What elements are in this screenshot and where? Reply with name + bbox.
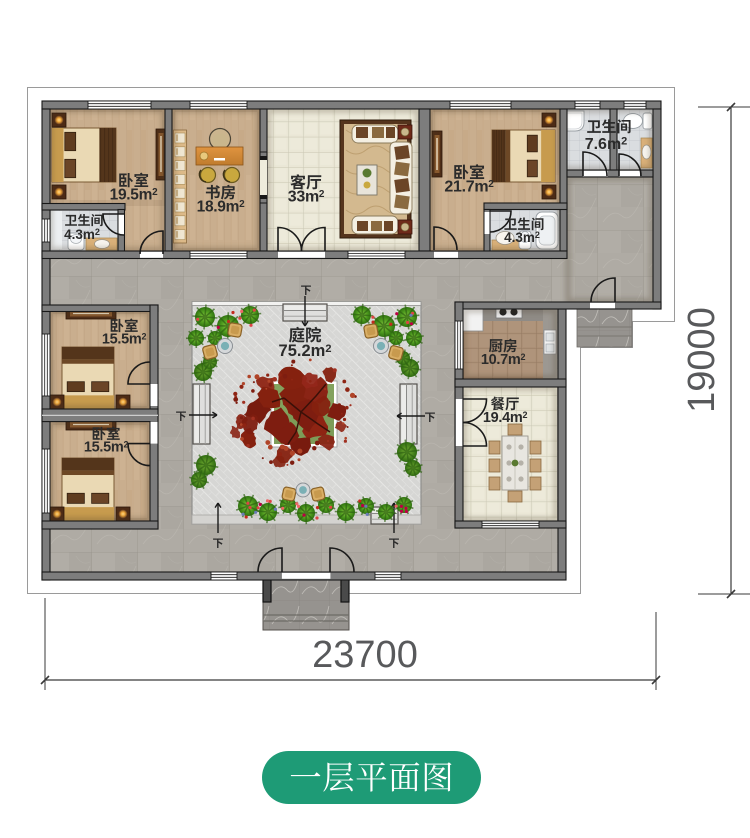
- svg-text:10.7m2: 10.7m2: [481, 352, 526, 368]
- svg-text:15.5m2: 15.5m2: [84, 439, 129, 455]
- svg-text:4.3m2: 4.3m2: [64, 227, 100, 242]
- svg-text:19000: 19000: [681, 307, 723, 413]
- svg-text:19.4m2: 19.4m2: [483, 410, 528, 426]
- svg-text:21.7m2: 21.7m2: [444, 179, 494, 196]
- svg-text:15.5m2: 15.5m2: [102, 331, 147, 347]
- svg-text:23700: 23700: [312, 634, 418, 676]
- svg-text:7.6m2: 7.6m2: [585, 136, 628, 154]
- svg-text:75.2m2: 75.2m2: [279, 342, 332, 360]
- svg-text:4.3m2: 4.3m2: [504, 230, 540, 245]
- svg-text:18.9m2: 18.9m2: [197, 199, 245, 216]
- svg-text:19.5m2: 19.5m2: [110, 187, 158, 204]
